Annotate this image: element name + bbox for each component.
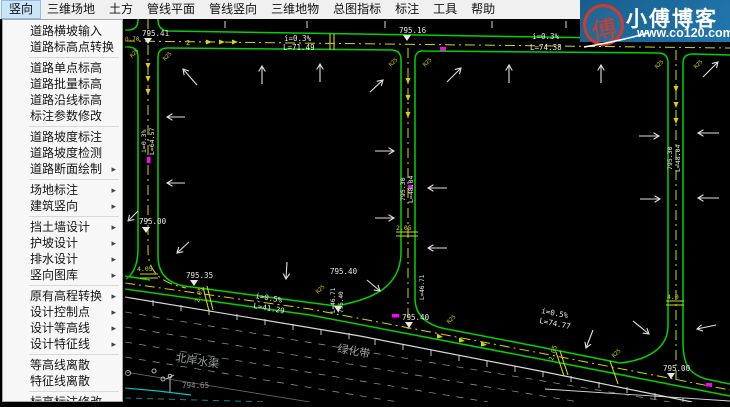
- menu-item-等高线离散[interactable]: 等高线离散: [3, 357, 122, 373]
- magenta-ticks: [147, 47, 712, 387]
- cad-label: R25: [315, 284, 326, 295]
- submenu-arrow-icon: ▸: [111, 304, 116, 320]
- menu-separator: [29, 57, 119, 58]
- submenu-arrow-icon: ▸: [111, 336, 116, 352]
- submenu-arrow-icon: ▸: [111, 288, 116, 304]
- cad-label: L=71.49: [283, 43, 315, 52]
- cad-label: L=48.04: [674, 145, 682, 172]
- cad-label: R25: [611, 348, 622, 359]
- menu-item-竖向图库[interactable]: 竖向图库▸: [3, 267, 122, 283]
- cad-label: R25: [654, 59, 665, 70]
- cad-label: 795.00: [663, 364, 691, 373]
- menu-item-标高标注修改[interactable]: 标高标注修改: [3, 394, 122, 402]
- menubar-item-管线竖向[interactable]: 管线竖向: [202, 1, 264, 18]
- menu-separator: [29, 354, 119, 355]
- menu-separator: [29, 285, 119, 286]
- elevation-marker: [190, 280, 198, 286]
- menu-item-原有高程转换[interactable]: 原有高程转换▸: [3, 288, 122, 304]
- menu-item-道路批量标高[interactable]: 道路批量标高: [3, 76, 122, 92]
- cad-label: R25: [162, 51, 173, 62]
- road-centerlines: [125, 19, 730, 390]
- menu-item-设计特征线[interactable]: 设计特征线▸: [3, 336, 122, 352]
- menubar-item-管线平面[interactable]: 管线平面: [140, 1, 202, 18]
- submenu-arrow-icon: ▸: [111, 219, 116, 235]
- cad-label: i=0.3%: [140, 129, 148, 153]
- cad-label: R25: [129, 48, 140, 59]
- menubar-item-三维地物[interactable]: 三维地物: [264, 1, 326, 18]
- submenu-arrow-icon: ▸: [111, 198, 116, 214]
- menu-item-道路标高点转换[interactable]: 道路标高点转换: [3, 39, 122, 55]
- cad-label: i=0.3%: [284, 34, 312, 43]
- cad-label: 2.05: [193, 286, 205, 303]
- cad-label: i=0.3%: [532, 32, 560, 41]
- canal-solid-line: [125, 372, 310, 402]
- menu-item-设计控制点[interactable]: 设计控制点▸: [3, 304, 122, 320]
- cad-label: 2: [186, 39, 190, 47]
- menu-item-道路单点标高[interactable]: 道路单点标高: [3, 60, 122, 76]
- cad-label: 北岸水渠: [175, 351, 220, 371]
- submenu-arrow-icon: ▸: [111, 267, 116, 283]
- site-logo: 傅 小傅博客 www.co120.com: [580, 0, 730, 42]
- cad-label: 795.30: [399, 177, 407, 201]
- cad-label: L=64.57: [148, 128, 156, 155]
- menu-item-护坡设计[interactable]: 护坡设计▸: [3, 235, 122, 251]
- submenu-arrow-icon: ▸: [111, 182, 116, 198]
- menubar-item-三维场地[interactable]: 三维场地: [40, 1, 102, 18]
- drainage-arrows: [128, 62, 719, 348]
- menubar-item-标注[interactable]: 标注: [388, 1, 426, 18]
- cad-label: 0.70: [125, 36, 140, 43]
- menu-separator: [29, 179, 119, 180]
- cad-label: 795.40: [330, 267, 358, 276]
- submenu-arrow-icon: ▸: [111, 320, 116, 336]
- cad-label: 795.41: [142, 29, 169, 38]
- submenu-arrow-icon: ▸: [111, 235, 116, 251]
- cad-label: 794.65: [182, 381, 209, 390]
- cad-label: R25: [422, 57, 433, 68]
- elevation-marker: [403, 35, 411, 41]
- elevation-marker: [667, 373, 675, 379]
- cad-label: 795.35: [186, 271, 213, 280]
- menu-item-挡土墙设计[interactable]: 挡土墙设计▸: [3, 219, 122, 235]
- menubar-item-总图指标[interactable]: 总图指标: [326, 1, 388, 18]
- menu-item-道路坡度检测[interactable]: 道路坡度检测: [3, 145, 122, 161]
- cad-label: L=46.71: [330, 287, 337, 313]
- cad-label: R25: [388, 57, 399, 68]
- menubar-item-工具[interactable]: 工具: [426, 1, 464, 18]
- menu-separator: [29, 126, 119, 127]
- menu-separator: [29, 216, 119, 217]
- menu-item-道路坡度标注[interactable]: 道路坡度标注: [3, 129, 122, 145]
- menu-item-特征线离散[interactable]: 特征线离散: [3, 373, 122, 389]
- menu-item-道路横坡输入[interactable]: 道路横坡输入: [3, 23, 122, 39]
- cad-label: R25: [446, 314, 457, 325]
- cad-label: L=74.38: [530, 43, 562, 52]
- cad-label: 绿化带: [336, 341, 371, 361]
- cad-label: L=48.04: [407, 176, 415, 203]
- menu-item-建筑竖向[interactable]: 建筑竖向▸: [3, 198, 122, 214]
- menu-item-标注参数修改[interactable]: 标注参数修改: [3, 108, 122, 124]
- app-window: { "menu_bar": { "items": [ {"label": "竖向…: [0, 0, 730, 402]
- cad-label: 4.0: [667, 293, 679, 301]
- cad-label: L=46.71: [419, 274, 426, 300]
- menubar-item-土方[interactable]: 土方: [102, 1, 140, 18]
- road-edges: [125, 19, 730, 396]
- submenu-arrow-icon: ▸: [111, 161, 116, 177]
- elevation-marker: [142, 227, 150, 233]
- grade-break-markers: [140, 34, 684, 384]
- menu-separator: [29, 391, 119, 392]
- cad-label: R25: [693, 59, 704, 70]
- cad-label: 795.00: [139, 217, 167, 226]
- cad-label: 4.05: [137, 265, 153, 273]
- cad-label: 2.05: [396, 224, 412, 232]
- menubar-item-帮助[interactable]: 帮助: [464, 1, 502, 18]
- site-url: www.co120.com: [637, 26, 730, 40]
- menubar-item-竖向[interactable]: 竖向: [2, 1, 40, 18]
- menu-item-场地标注[interactable]: 场地标注▸: [3, 182, 122, 198]
- menu-item-设计等高线[interactable]: 设计等高线▸: [3, 320, 122, 336]
- cad-label: 2.05: [547, 344, 559, 361]
- cad-label: 795.40: [402, 313, 430, 322]
- cad-label: 795.30: [666, 146, 674, 170]
- menu-item-道路沿线标高[interactable]: 道路沿线标高: [3, 92, 122, 108]
- dropdown-menu: 道路横坡输入道路标高点转换道路单点标高道路批量标高道路沿线标高标注参数修改道路坡…: [2, 19, 123, 402]
- cad-label: 795.16: [399, 26, 427, 35]
- submenu-arrow-icon: ▸: [111, 251, 116, 267]
- menu-item-道路断面绘制[interactable]: 道路断面绘制▸: [3, 161, 122, 177]
- seal-icon: 傅: [580, 1, 628, 49]
- menu-item-排水设计[interactable]: 排水设计▸: [3, 251, 122, 267]
- utility-line-teal: [125, 398, 268, 402]
